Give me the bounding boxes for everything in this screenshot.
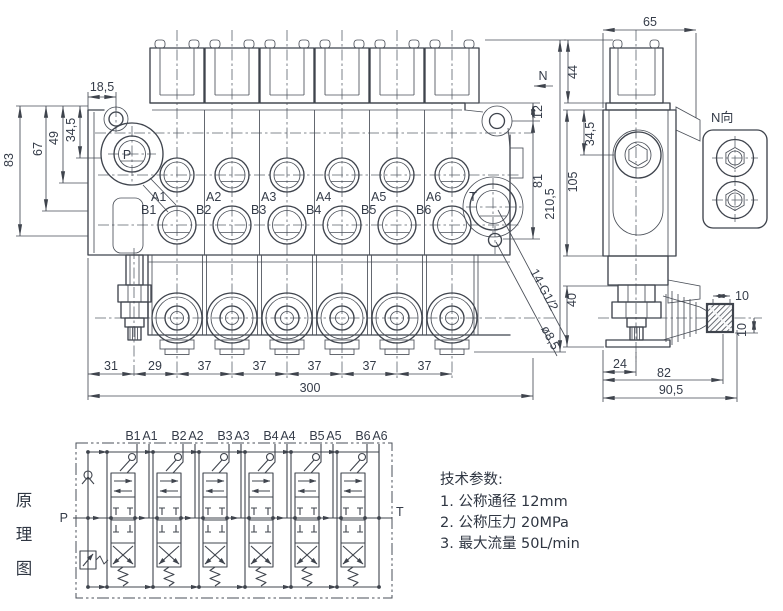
dim-37-1: 37 [198,359,212,373]
dim-10-top: 10 [735,289,749,303]
dim-44: 44 [566,65,580,79]
dim-105: 105 [566,172,580,193]
dim-37-2: 37 [253,359,267,373]
relief-valve-symbol [80,551,108,569]
sch-label-a1: A1 [142,429,157,443]
tech-params-title: 技术参数: [440,471,503,488]
port-label-b4: B4 [306,203,321,217]
engineering-drawing-sheet: P T A1 A2 A3 A4 A5 A6 B1 B2 B3 B4 B5 B6 … [0,0,783,611]
dim-37-5: 37 [418,359,432,373]
n-direction-view: N向 [703,110,767,228]
dim-67: 67 [31,142,45,156]
n-view-label: N向 [711,110,733,125]
sch-label-a5: A5 [326,429,341,443]
port-label-b2: B2 [196,203,211,217]
dim-81: 81 [531,174,545,188]
port-label-b6: B6 [416,203,431,217]
tech-param-3-value: 50L/min [521,536,580,552]
sch-label-a3: A3 [234,429,249,443]
port-label-a3: A3 [261,190,276,204]
view-arrow-n: N [538,69,547,83]
port-label-a5: A5 [371,190,386,204]
tech-params: 技术参数: 1. 公称通径 12mm 2. 公称压力 20MPa 3. 最大流量… [440,471,580,552]
sch-port-p: P [60,511,68,525]
dim-31: 31 [104,359,118,373]
front-view-dimensions: 18,5 34,5 49 67 83 12 81 210,5 31 29 37 … [2,40,566,400]
port-label-a6: A6 [426,190,441,204]
dim-65: 65 [643,15,657,29]
tech-param-2-label: 2. 公称压力 [440,514,516,531]
sch-label-a6: A6 [372,429,387,443]
dim-29: 29 [148,359,162,373]
sch-label-b3: B3 [217,429,232,443]
dim-12: 12 [531,105,545,119]
dim-24: 24 [613,357,627,371]
sch-label-b6: B6 [355,429,370,443]
tech-param-2-value: 20MPa [521,515,569,531]
dim-10-right: 10 [735,323,749,337]
dim-40: 40 [565,293,579,307]
port-label-b5: B5 [361,203,376,217]
sch-label-b1: B1 [125,429,140,443]
dim-37-3: 37 [308,359,322,373]
leader-hole-note: ø8,5 [538,323,562,352]
port-label-b3: B3 [251,203,266,217]
dim-18-5: 18,5 [90,80,114,94]
tech-param-1-value: 12mm [521,494,568,510]
dim-82: 82 [657,366,671,380]
tech-param-3-label: 3. 最大流量 [440,535,516,552]
port-label-a4: A4 [316,190,331,204]
schematic-title-char-1: 原 [16,491,33,510]
port-label-a1: A1 [151,190,166,204]
hydraulic-schematic: 原 理 图 B1 A1 B2 A2 B3 A3 B4 A4 B5 A5 B6 A… [16,429,404,598]
port-label-a2: A2 [206,190,221,204]
side-view-dimensions: 65 44 34,5 105 40 24 82 90,5 10 10 [563,15,758,402]
schematic-title-char-3: 图 [16,559,33,578]
sch-label-b5: B5 [309,429,324,443]
relief-valve-side [606,285,670,347]
relief-valve-front [118,255,151,340]
dim-49: 49 [47,131,61,145]
dim-34-5-left: 34,5 [64,118,78,142]
valve-drawing-svg: P T A1 A2 A3 A4 A5 A6 B1 B2 B3 B4 B5 B6 … [0,0,783,611]
schematic-title-char-2: 理 [16,525,33,544]
port-label-b1: B1 [141,203,156,217]
dim-210-5: 210,5 [543,188,557,219]
dim-34-5-side: 34,5 [583,122,597,146]
dim-83: 83 [2,153,16,167]
tech-param-1-label: 1. 公称通径 [440,493,516,510]
dim-37-4: 37 [363,359,377,373]
port-label-p: P [123,148,131,162]
front-view: P T A1 A2 A3 A4 A5 A6 B1 B2 B3 B4 B5 B6 … [2,30,566,400]
sch-label-b4: B4 [263,429,278,443]
port-label-t: T [469,190,477,204]
dim-90-5: 90,5 [659,383,683,397]
sch-label-b2: B2 [171,429,186,443]
dim-300: 300 [300,381,321,395]
sch-port-t: T [396,505,404,519]
sch-label-a4: A4 [280,429,295,443]
leader-thread-note: 14-G1/2 [527,266,561,312]
sch-label-a2: A2 [188,429,203,443]
